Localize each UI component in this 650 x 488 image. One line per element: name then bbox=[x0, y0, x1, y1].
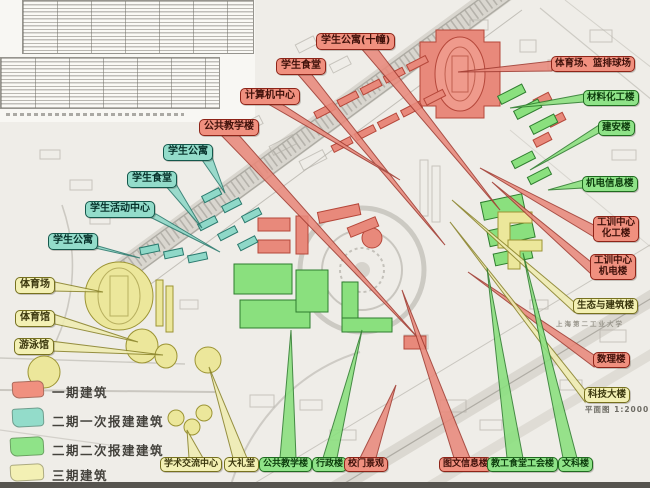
callout-student-apartments-b: 学生公寓 bbox=[48, 233, 98, 250]
callout-student-canteen-p1: 学生食堂 bbox=[276, 58, 326, 75]
callout-math-physics-bldg: 数理楼 bbox=[593, 352, 630, 368]
callout-grand-auditorium: 大礼堂 bbox=[224, 457, 259, 472]
callout-public-teaching-bldg-p1: 公共教学楼 bbox=[199, 119, 259, 136]
callout-science-tech-bldg: 科技大楼 bbox=[584, 387, 630, 403]
callout-stadium: 体育场 bbox=[15, 277, 55, 294]
callout-gate-landscape: 校门景观 bbox=[344, 457, 388, 472]
callout-staff-canteen-union-bldg: 教工食堂工会楼 bbox=[487, 457, 558, 472]
callout-student-canteen-p2: 学生食堂 bbox=[127, 171, 177, 188]
callout-materials-chem-bldg: 材料化工楼 bbox=[583, 90, 639, 106]
callout-student-apartments-a: 学生公寓 bbox=[163, 144, 213, 161]
callout-gymnasium: 体育馆 bbox=[15, 310, 55, 327]
callout-natatorium: 游泳馆 bbox=[14, 338, 54, 355]
legend-label-phase1: 一期建筑 bbox=[52, 382, 108, 401]
legend-label-phase2a: 二期一次报建建筑 bbox=[52, 411, 164, 430]
callout-jian-an-bldg: 建安楼 bbox=[598, 120, 635, 136]
image-bottom-strip bbox=[0, 482, 650, 488]
legend-swatch-phase1 bbox=[12, 380, 45, 399]
callout-library-info-bldg: 图文信息楼 bbox=[439, 457, 492, 472]
callout-public-teaching-bldg-p2: 公共教学楼 bbox=[259, 457, 312, 472]
callout-academic-exchange-center: 学术交流中心 bbox=[160, 457, 222, 472]
callout-student-activity-center: 学生活动中心 bbox=[85, 201, 155, 218]
legend-label-phase2b: 二期二次报建建筑 bbox=[52, 440, 164, 459]
legend-swatch-phase2a bbox=[12, 407, 45, 428]
table-footnote bbox=[6, 113, 184, 116]
callout-training-center-chem: 工训中心 化工楼 bbox=[593, 216, 639, 242]
legend-swatch-phase2b bbox=[10, 436, 45, 457]
info-table-bottom bbox=[0, 57, 220, 109]
legend-swatch-phase3 bbox=[10, 463, 45, 482]
callout-computer-center: 计算机中心 bbox=[240, 88, 300, 105]
callout-admin-bldg: 行政楼 bbox=[312, 457, 347, 472]
info-table-top bbox=[22, 0, 254, 54]
scale-note: 平面图 1:2000 bbox=[585, 404, 649, 415]
callout-training-center-mech: 工训中心 机电楼 bbox=[590, 254, 636, 280]
callout-liberal-arts-bldg: 文科楼 bbox=[558, 457, 593, 472]
campus-name-text: 上海第二工业大学 bbox=[556, 318, 624, 328]
callout-stadium-ball-courts: 体育场、篮排球场 bbox=[551, 56, 635, 72]
callout-ecology-architecture-bldg: 生态与建筑楼 bbox=[573, 298, 638, 314]
callout-electromech-info-bldg: 机电信息楼 bbox=[582, 176, 638, 192]
campus-master-plan: 学生公寓(十幢) 学生食堂 计算机中心 公共教学楼 学生公寓 学生食堂 学生活动… bbox=[0, 0, 650, 488]
callout-student-apartments-ten: 学生公寓(十幢) bbox=[316, 33, 395, 50]
